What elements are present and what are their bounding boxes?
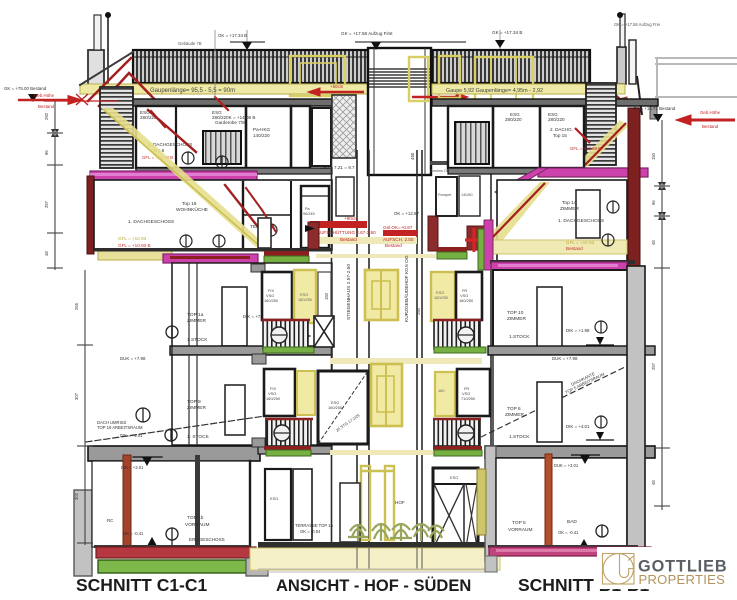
- svg-text:HOF: HOF: [395, 500, 405, 505]
- svg-text:Garderobe 7/8: Garderobe 7/8: [215, 120, 245, 125]
- svg-text:ERDGESCHOSS: ERDGESCHOSS: [189, 537, 225, 542]
- svg-text:TOP 10: TOP 10: [507, 310, 524, 316]
- svg-text:Pa-HKG: Pa-HKG: [253, 127, 271, 132]
- svg-text:292: 292: [44, 112, 49, 120]
- svg-text:ANSICHT - HOF - SÜDEN: ANSICHT - HOF - SÜDEN: [276, 576, 471, 595]
- svg-text:GK = +17.58 Aufzug Frei: GK = +17.58 Aufzug Frei: [614, 22, 660, 27]
- svg-text:ZIMMER: ZIMMER: [507, 316, 526, 322]
- svg-text:OK = -0.04: OK = -0.04: [300, 529, 321, 534]
- svg-text:Top 16: Top 16: [182, 201, 197, 207]
- svg-text:Top 14: Top 14: [562, 200, 577, 206]
- svg-text:Top 15: Top 15: [553, 133, 567, 138]
- svg-text:450: 450: [410, 152, 415, 160]
- svg-text:ZIMMER: ZIMMER: [560, 206, 579, 212]
- svg-text:Bestand: Bestand: [385, 243, 402, 248]
- svg-text:GFL = +10.93: GFL = +10.93: [118, 236, 147, 241]
- svg-text:257: 257: [44, 200, 49, 208]
- svg-text:DIK = +4.01: DIK = +4.01: [120, 433, 143, 438]
- svg-text:140/220: 140/220: [253, 133, 270, 138]
- svg-text:TOP 6: TOP 6: [507, 406, 521, 412]
- svg-text:OK = +12.87: OK = +12.87: [394, 211, 419, 216]
- svg-text:TOP 1a: TOP 1a: [187, 312, 204, 318]
- svg-text:VORRAUM: VORRAUM: [185, 522, 210, 528]
- svg-text:DUK = +3.01: DUK = +3.01: [554, 463, 579, 468]
- svg-text:2.50 ÷ 7.21 = 9.7: 2.50 ÷ 7.21 = 9.7: [320, 165, 355, 170]
- svg-text:TERRASSE TOP 1a: TERRASSE TOP 1a: [295, 523, 334, 528]
- svg-text:RC: RC: [107, 518, 113, 523]
- svg-text:ESG: ESG: [450, 475, 458, 480]
- svg-text:96: 96: [651, 200, 656, 205]
- svg-text:+90cm: +90cm: [344, 216, 358, 221]
- svg-text:TOP 1b: TOP 1b: [187, 515, 204, 521]
- svg-text:1. STOCK: 1. STOCK: [187, 434, 210, 440]
- svg-text:Geb.Höhe: Geb.Höhe: [34, 93, 55, 98]
- svg-text:GFL = +13.98 B: GFL = +13.98 B: [570, 146, 601, 151]
- svg-text:DUK = +7.98: DUK = +7.98: [120, 356, 146, 361]
- svg-text:GK = +17.34 B: GK = +17.34 B: [492, 30, 522, 35]
- svg-text:Bestand: Bestand: [702, 124, 719, 129]
- svg-text:48: 48: [651, 240, 656, 245]
- svg-text:90/245: 90/245: [303, 212, 315, 216]
- svg-text:160/250: 160/250: [266, 396, 281, 401]
- svg-text:GK = +17.34 B: GK = +17.34 B: [218, 33, 247, 38]
- svg-text:1. DACHGESCHOSS: 1. DACHGESCHOSS: [558, 218, 604, 224]
- svg-text:GK = +75.00 Bestand: GK = +75.00 Bestand: [4, 86, 47, 91]
- svg-text:1.STOCK: 1.STOCK: [187, 337, 208, 343]
- svg-text:Gaupenlänge= 95,5 - 5,5 = 90m: Gaupenlänge= 95,5 - 5,5 = 90m: [150, 88, 235, 94]
- svg-text:PROPERTIES: PROPERTIES: [639, 572, 726, 587]
- svg-text:AUFSCHÜTTUNG 2.67-2.50: AUFSCHÜTTUNG 2.67-2.50: [317, 229, 376, 235]
- svg-text:Gebäude 7B: Gebäude 7B: [178, 41, 202, 46]
- svg-text:1.STOCK: 1.STOCK: [509, 334, 530, 340]
- svg-text:ZIMMER: ZIMMER: [187, 405, 206, 411]
- svg-text:Bestand: Bestand: [340, 237, 357, 242]
- svg-text:GK = +16.71 Bestand: GK = +16.71 Bestand: [633, 106, 676, 111]
- svg-text:280/220: 280/220: [548, 117, 565, 122]
- svg-text:265: 265: [74, 302, 79, 310]
- svg-text:160/250: 160/250: [328, 405, 343, 410]
- svg-text:GFL = +10.93 B: GFL = +10.93 B: [118, 243, 151, 248]
- svg-text:140/80: 140/80: [461, 193, 473, 197]
- svg-text:DUK = +7.98: DUK = +7.98: [552, 356, 578, 361]
- svg-text:160/250: 160/250: [459, 298, 474, 303]
- svg-text:160/250: 160/250: [434, 295, 449, 300]
- svg-text:307: 307: [74, 392, 79, 400]
- svg-text:160/250: 160/250: [264, 298, 279, 303]
- svg-text:2. DACHG.: 2. DACHG.: [550, 127, 573, 132]
- svg-text:302: 302: [74, 492, 79, 500]
- svg-text:ZIMMER: ZIMMER: [187, 318, 206, 324]
- svg-text:OK = -0.41: OK = -0.41: [123, 531, 144, 536]
- svg-text:250: 250: [416, 307, 421, 315]
- svg-text:WOHNKÜCHE: WOHNKÜCHE: [176, 206, 208, 213]
- svg-text:710/250: 710/250: [461, 396, 476, 401]
- svg-text:280/220: 280/220: [505, 117, 522, 122]
- svg-text:Bestand: Bestand: [38, 104, 55, 109]
- svg-text:150: 150: [651, 152, 656, 160]
- svg-text:GK = +17.58 Aufzug First: GK = +17.58 Aufzug First: [341, 31, 393, 36]
- svg-text:Gaupe 5,92 Gaupenlänge= 4,95m: Gaupe 5,92 Gaupenlänge= 4,95m - 2,92: [446, 88, 543, 94]
- svg-text:TOP 5: TOP 5: [512, 520, 526, 526]
- svg-text:48: 48: [44, 251, 49, 256]
- svg-text:1.STOCK: 1.STOCK: [509, 434, 530, 440]
- svg-text:Bestand: Bestand: [566, 246, 583, 251]
- svg-text:Gel.OK=+0.87: Gel.OK=+0.87: [383, 225, 413, 230]
- svg-text:OK = -0.41: OK = -0.41: [558, 530, 579, 535]
- svg-text:TOP 9: TOP 9: [187, 399, 201, 405]
- svg-text:150: 150: [324, 292, 329, 300]
- svg-text:96: 96: [44, 150, 49, 155]
- svg-text:ZIMMER: ZIMMER: [505, 412, 524, 418]
- svg-text:GFL = +10.93: GFL = +10.93: [566, 240, 595, 245]
- svg-text:BAD: BAD: [567, 519, 577, 525]
- svg-text:AUFSCH. 2.50: AUFSCH. 2.50: [383, 237, 414, 242]
- svg-text:160/250: 160/250: [298, 297, 313, 302]
- svg-text:+60cm: +60cm: [330, 84, 344, 89]
- svg-text:Parapet: Parapet: [438, 193, 452, 197]
- svg-text:TOP 16 ARBEITSRAUM: TOP 16 ARBEITSRAUM: [97, 425, 143, 430]
- svg-text:160: 160: [438, 388, 445, 393]
- svg-text:48: 48: [651, 480, 656, 485]
- svg-text:VORRAUM: VORRAUM: [508, 527, 533, 533]
- svg-text:DIK = +1.98: DIK = +1.98: [566, 328, 590, 333]
- svg-text:257: 257: [651, 362, 656, 370]
- svg-text:DIK = +3.01: DIK = +3.01: [121, 465, 144, 470]
- svg-text:ESG: ESG: [270, 496, 278, 501]
- svg-text:KURZGEBÄUDEHOF K0.5 OG: KURZGEBÄUDEHOF K0.5 OG: [403, 255, 410, 322]
- svg-text:1. DACHGESCHOSS: 1. DACHGESCHOSS: [128, 219, 174, 225]
- svg-text:SCHNITT C1-C1: SCHNITT C1-C1: [76, 575, 208, 595]
- svg-text:Geb.Höhe: Geb.Höhe: [700, 110, 721, 115]
- svg-text:DIK = +4.01: DIK = +4.01: [566, 424, 590, 429]
- svg-text:STIEGENHAUS 2.57-2.50: STIEGENHAUS 2.57-2.50: [346, 264, 352, 320]
